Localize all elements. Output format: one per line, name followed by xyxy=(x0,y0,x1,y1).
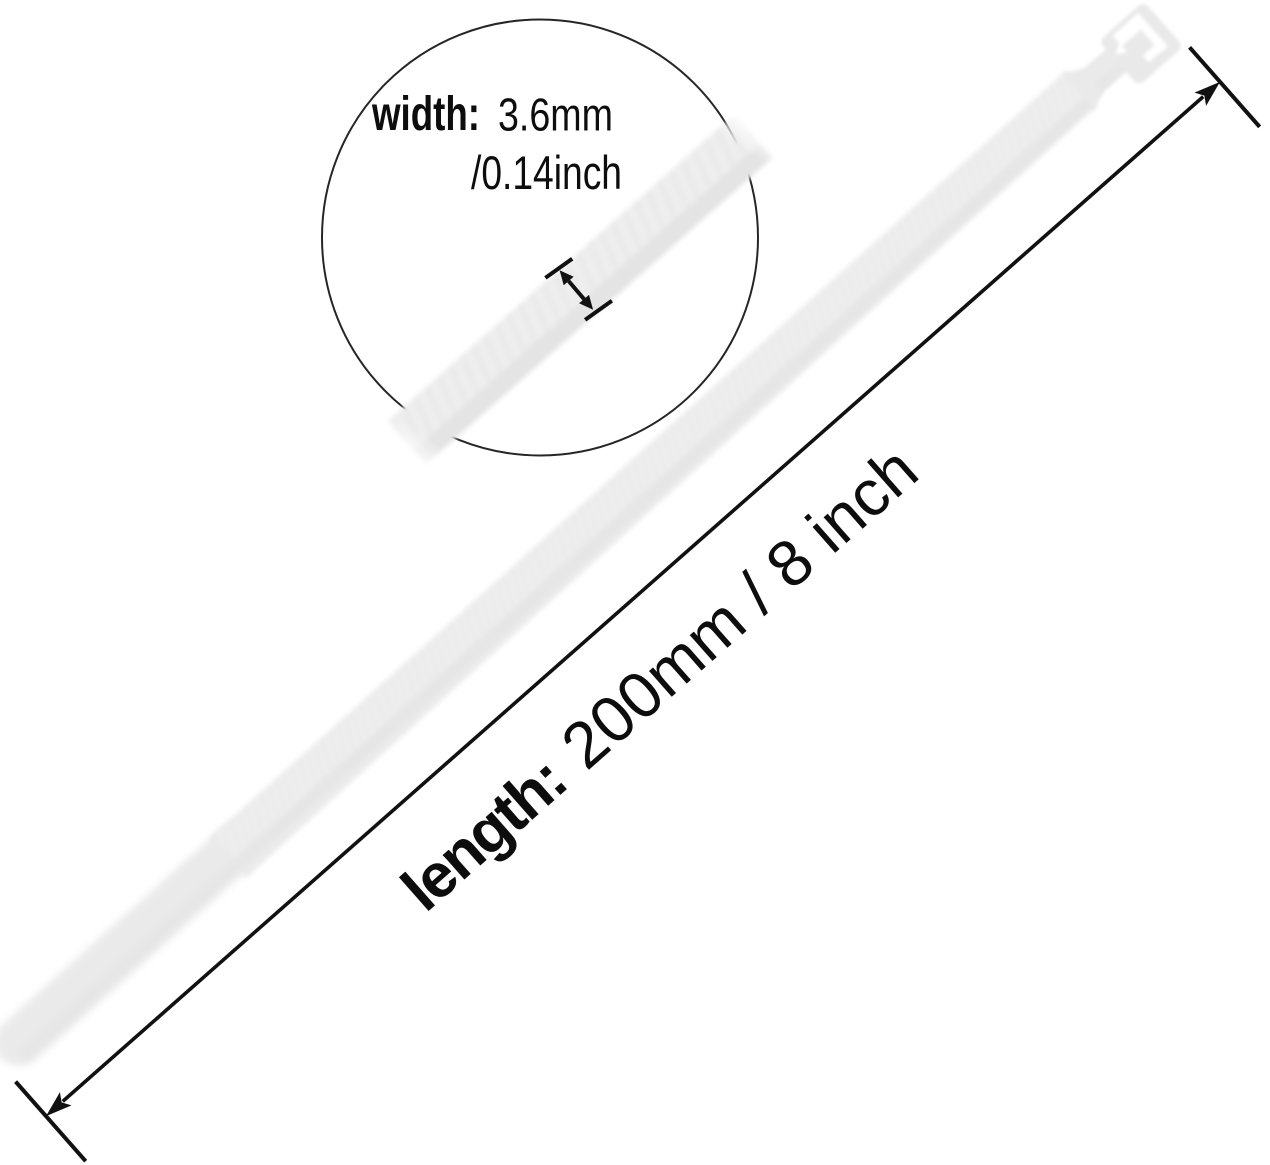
svg-text:/0.14inch: /0.14inch xyxy=(471,146,622,199)
svg-text:width:: width: xyxy=(371,88,480,141)
svg-text:3.6mm: 3.6mm xyxy=(498,89,613,141)
